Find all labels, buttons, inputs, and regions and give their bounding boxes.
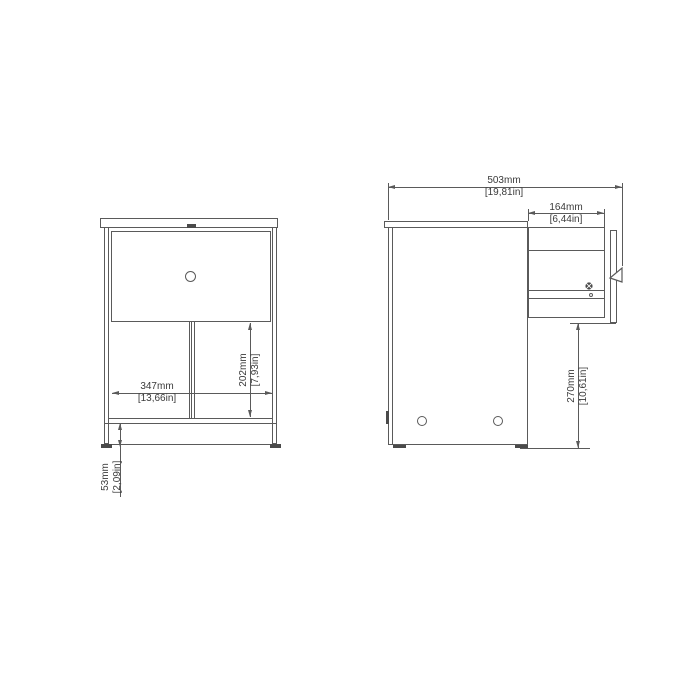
dim-ext-line [520,448,590,449]
dim-ext-line [604,209,605,227]
drawer-rail-line [528,250,605,251]
dim-label-drawer-extension: 164mm [6,44in] [531,202,601,226]
dim-total-depth-mm: 503mm [464,175,544,187]
assembly-hole [493,416,503,426]
drawer-box-side [528,227,605,318]
dim-floor-clearance-mm: 270mm [566,354,578,418]
screw-head-icon [584,281,594,291]
dim-label-floor-clearance: 270mm [10,61in] [566,354,590,418]
dim-drawer-extension-inch: [6,44in] [531,214,601,226]
dim-drawer-extension-mm: 164mm [531,202,601,214]
technical-drawing: 347mm [13,66in] 202mm [7,93in] 53mm [2,0… [0,0,700,700]
dim-ext-line [622,183,623,266]
dim-label-total-depth: 503mm [19,81in] [464,175,544,199]
drawer-handle-profile [608,266,626,284]
dim-floor-clearance-inch: [10,61in] [578,354,590,418]
side-view: 503mm [19,81in] 164mm [6,44in] 270mm [10… [0,0,700,700]
drawer-rail-line [528,298,605,299]
assembly-hole [417,416,427,426]
dim-arrow-down [576,441,580,448]
pilot-hole [589,293,593,297]
edge-detail-mark [386,411,389,424]
side-foot-front [393,445,406,448]
side-edge-inner-line [392,227,393,445]
side-body [388,227,528,445]
dim-total-depth-inch: [19,81in] [464,187,544,199]
dim-arrow-up [576,323,580,330]
dim-arrow-left [388,185,395,189]
dim-arrow-right [615,185,622,189]
